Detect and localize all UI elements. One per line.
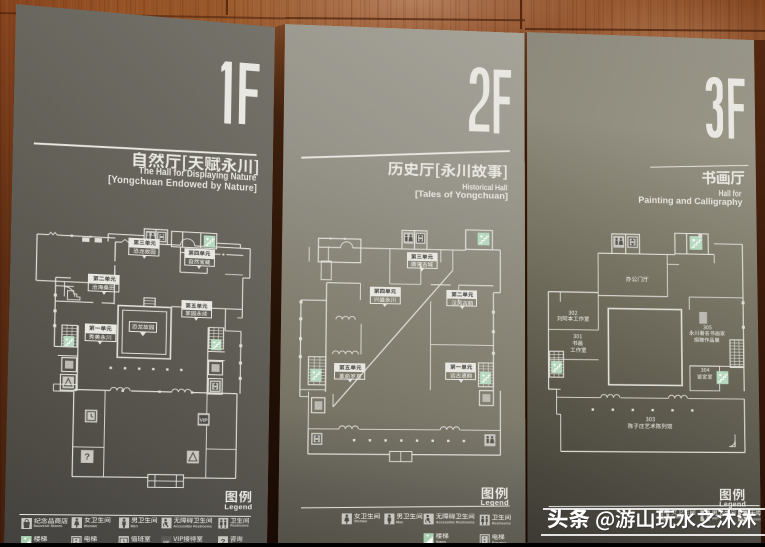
svg-text:?: ? (221, 538, 226, 547)
svg-text:VIP: VIP (163, 539, 170, 544)
svg-text:VIP: VIP (199, 418, 208, 424)
svg-text:?: ? (84, 452, 90, 462)
